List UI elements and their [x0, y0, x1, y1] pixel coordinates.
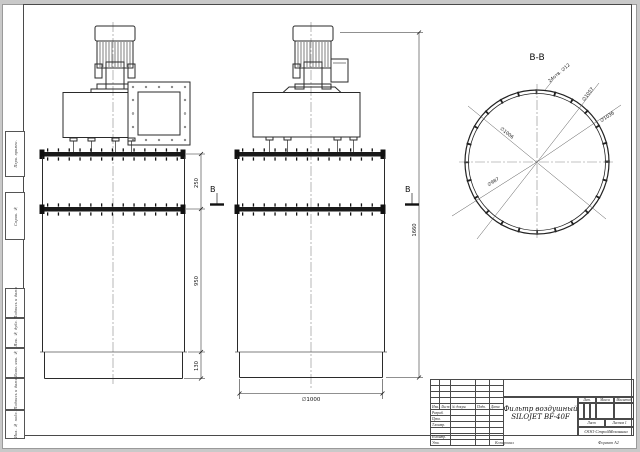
- housing-foot: [70, 138, 77, 141]
- housing-foot: [334, 137, 341, 140]
- fan-housing: [253, 93, 360, 138]
- top-flange: [235, 150, 386, 160]
- motor-foot: [97, 84, 106, 89]
- designation-cell: [503, 379, 634, 397]
- motor-fan-cowl: [95, 26, 135, 41]
- list-cell: Лист: [578, 419, 605, 427]
- housing-foot: [350, 137, 357, 140]
- drawing-sheet-page: Перв. примен. Справ. № Подпись и дата Ин…: [0, 0, 640, 452]
- section-letter: B: [210, 185, 216, 194]
- motor-fins: [100, 42, 130, 67]
- housing-foot: [88, 138, 95, 141]
- motor-fan-cowl: [293, 26, 333, 41]
- listov-cell: Листов 1: [605, 419, 634, 427]
- side-view-dimensions: [238, 31, 424, 400]
- support-legs: [270, 140, 354, 152]
- housing-foot: [284, 137, 291, 140]
- section-title: B-B: [529, 53, 544, 63]
- product-name-cell: Фильтр воздушный SILOJET BF-40F: [503, 397, 578, 436]
- section-marker-left: B: [210, 185, 224, 205]
- dim-body-mid: 950: [194, 276, 200, 286]
- motor-fins: [298, 42, 328, 67]
- top-flange: [40, 150, 186, 160]
- dim-holes-note: 24отв. ∅12: [547, 62, 571, 84]
- mid-flange: [40, 205, 186, 215]
- section-marker-right: B: [405, 185, 419, 205]
- company-cell: ООО СтройМеханика: [578, 427, 634, 436]
- mid-flange: [235, 205, 386, 215]
- motor-terminal-box: [331, 59, 348, 82]
- dim-skirt: 130: [194, 361, 200, 371]
- product-name-line1: Фильтр воздушный: [504, 405, 578, 413]
- front-view: [40, 22, 191, 384]
- fan-housing: [63, 93, 137, 138]
- massa-value: [596, 403, 614, 419]
- footer-format: Формат А2: [598, 440, 619, 445]
- dim-outer-diameter: ∅1000: [302, 397, 321, 403]
- dim-overall-height: 1660: [412, 223, 418, 236]
- housing-foot: [266, 137, 273, 140]
- title-block-left-grid: Изм. Лист № докум. Подп. Дата Разраб. Пр…: [430, 379, 504, 446]
- diameter-lines: [452, 80, 621, 239]
- section-letter: B: [405, 185, 411, 194]
- product-name-line2: SILOJET BF-40F: [511, 413, 570, 421]
- footer-copy: Копировал: [495, 440, 514, 445]
- section-view: B-B 24отв. ∅12 ∅1057 ∅1036 ∅1006 ∅987: [452, 53, 621, 240]
- side-view: [235, 22, 388, 388]
- title-block: Изм. Лист № докум. Подп. Дата Разраб. Пр…: [430, 379, 634, 436]
- dim-dia-1057: ∅1057: [581, 86, 595, 102]
- row-utv: Утв.: [431, 440, 451, 446]
- motor-side-tab: [95, 64, 102, 78]
- motor-side-tab: [128, 64, 135, 78]
- skirt: [45, 352, 183, 379]
- masshtab-value: [614, 403, 634, 419]
- dim-dia-1036: ∅1036: [599, 110, 615, 124]
- motor-side-tab: [293, 64, 300, 78]
- motor-pedestal: [283, 87, 341, 93]
- outlet-flange-plate: [128, 82, 190, 145]
- dim-flange-gap: 250: [194, 178, 200, 188]
